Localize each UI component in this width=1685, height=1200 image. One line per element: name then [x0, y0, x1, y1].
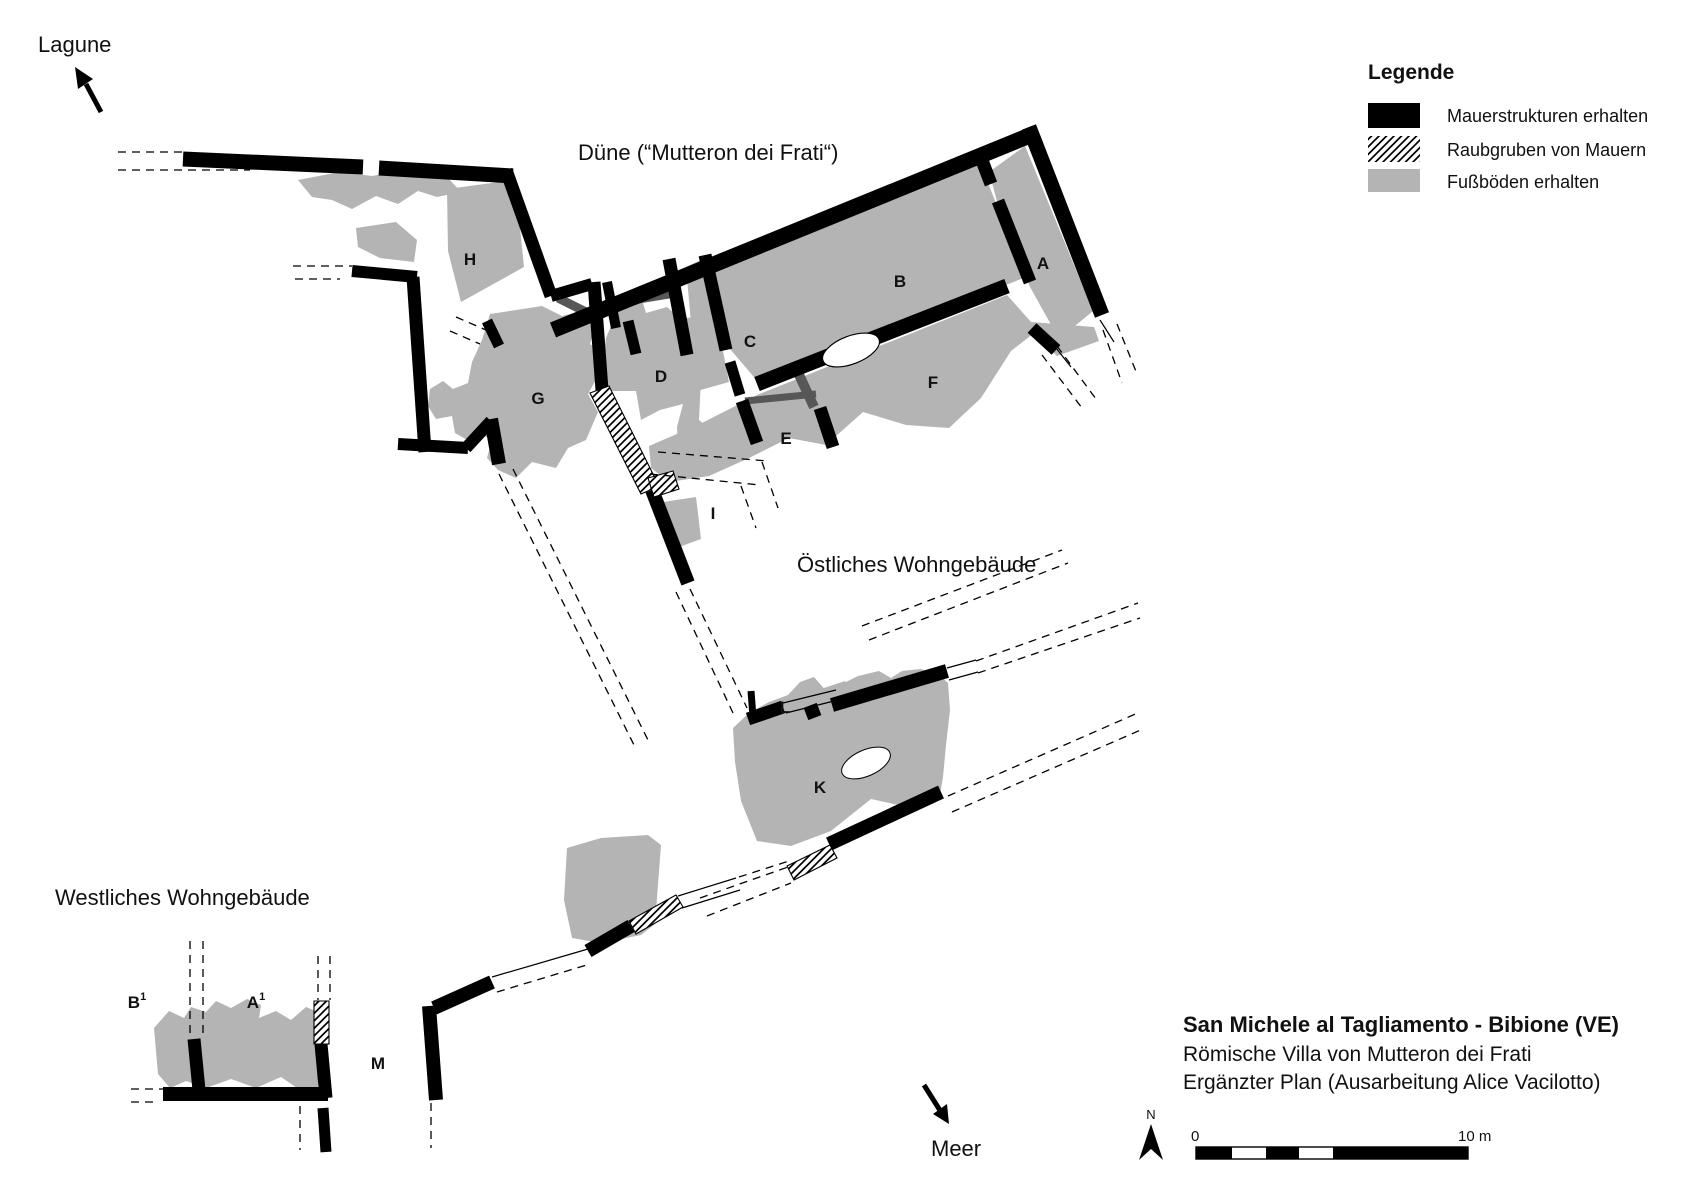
reconstruction-dashed-line [513, 469, 648, 740]
meer-arrow-shaft [924, 1085, 941, 1112]
scale-zero-label: 0 [1191, 1128, 1199, 1145]
plan-credit: Ergänzter Plan (Ausarbeitung Alice Vacil… [1183, 1071, 1601, 1094]
reconstruction-dashed-line [1103, 330, 1122, 383]
legend-title: Legende [1368, 61, 1454, 84]
room-label-b1-base: B [128, 993, 140, 1012]
wall-segment [321, 1044, 326, 1098]
reconstruction-dashed-line [690, 589, 747, 708]
wall-outline-line [1100, 320, 1114, 342]
wall-outline-line [949, 672, 978, 680]
legend-swatch-floors [1368, 169, 1420, 192]
room-label-k: K [814, 778, 827, 797]
wall-segment [398, 444, 468, 448]
wall-segment [628, 321, 636, 354]
lagune-arrow-head [75, 67, 93, 89]
reconstruction-dashed-line [952, 729, 1143, 812]
reconstruction-dashed-line [450, 331, 480, 344]
wall-segment [434, 982, 492, 1008]
wall-segment [413, 277, 425, 452]
meer-arrow [924, 1085, 949, 1124]
reconstruction-dashed-line [456, 317, 486, 330]
reconstruction-dashed-line [1057, 346, 1096, 399]
room-label-f: F [928, 373, 938, 392]
area-label-duene: Düne (“Mutteron dei Frati“) [578, 140, 838, 165]
robber-trench-hatch [314, 1001, 329, 1044]
legend-item-floors: Fußböden erhalten [1447, 172, 1599, 192]
reconstruction-dashed-line [976, 603, 1138, 661]
wall-segment [323, 1108, 326, 1152]
site-plan-canvas: N 0 10 m Legende Mauerstrukturen erhalte… [0, 0, 1685, 1200]
scale-bar-seg2 [1266, 1147, 1299, 1159]
scale-max-label: 10 m [1458, 1128, 1491, 1145]
wall-segment [194, 1039, 199, 1090]
north-arrow-glyph [1139, 1124, 1163, 1160]
reconstruction-dashed-line [1117, 324, 1137, 374]
wall-segment [806, 709, 819, 714]
wall-outline-line [678, 878, 736, 896]
room-label-a1-sup: 1 [259, 991, 265, 1003]
area-label-lagune: Lagune [38, 32, 111, 57]
room-label-a1: A1 [247, 991, 265, 1012]
room-label-b1-sup: 1 [140, 991, 146, 1003]
room-label-h: H [464, 250, 476, 269]
wall-outline-line [492, 949, 588, 977]
reconstruction-dashed-line [948, 712, 1140, 796]
scale-bar-seg1 [1196, 1147, 1232, 1159]
room-label-l: L [780, 698, 790, 717]
room-label-b1: B1 [128, 991, 146, 1012]
wall-segment [183, 159, 363, 167]
area-label-east-building: Östliches Wohngebäude [797, 552, 1036, 577]
robber-trench-hatch [787, 845, 837, 880]
wall-segment [491, 419, 499, 464]
reconstruction-dashed-line [707, 883, 791, 916]
room-label-d: D [655, 367, 667, 386]
lagune-arrow-shaft [86, 84, 101, 112]
west-floor [154, 999, 318, 1090]
wall-segment [352, 271, 417, 277]
room-label-g: G [531, 389, 544, 408]
lagune-arrow [75, 67, 101, 112]
reconstruction-dashed-line [700, 867, 788, 898]
legend-item-robber-trenches: Raubgruben von Mauern [1447, 140, 1646, 160]
reconstruction-dashed-line [497, 964, 590, 992]
wall-outline-line [682, 890, 740, 908]
north-arrow: N [1139, 1107, 1163, 1160]
reconstruction-dashed-line [499, 474, 634, 745]
legend-swatch-robber-trenches [1368, 136, 1420, 162]
north-label: N [1146, 1107, 1155, 1122]
room-label-b: B [894, 272, 906, 291]
reconstruction-dashed-line [676, 592, 733, 713]
room-label-e: E [780, 429, 791, 448]
title-block: San Michele al Tagliamento - Bibione (VE… [1183, 1012, 1619, 1094]
legend-swatch-walls [1368, 103, 1420, 128]
reconstruction-dashed-line [978, 618, 1140, 673]
room-label-c: C [744, 332, 756, 351]
site-plan-svg: N 0 10 m Legende Mauerstrukturen erhalte… [0, 0, 1685, 1200]
wall-segment [551, 284, 592, 296]
wall-outline-line [947, 660, 976, 668]
reconstruction-dashed-line [1042, 355, 1082, 408]
room-label-i: I [711, 504, 716, 523]
plan-subtitle: Römische Villa von Mutteron dei Frati [1183, 1043, 1532, 1066]
legend: Legende Mauerstrukturen erhalten Raubgru… [1368, 61, 1648, 192]
wall-segment [379, 168, 513, 176]
wall-segment [730, 362, 740, 395]
scale-bar-seg3 [1333, 1147, 1468, 1159]
wall-segment [983, 163, 991, 184]
legend-item-walls: Mauerstrukturen erhalten [1447, 106, 1648, 126]
wall-segment [751, 691, 753, 717]
floor-layer [154, 146, 1099, 1090]
area-label-meer: Meer [931, 1136, 981, 1161]
h-west-floor [356, 222, 417, 262]
reconstruction-dashed-line [741, 486, 756, 528]
area-label-west-building: Westliches Wohngebäude [55, 885, 310, 910]
room-label-m: M [371, 1054, 385, 1073]
scale-bar: 0 10 m [1191, 1128, 1491, 1159]
reconstruction-dashed-line [762, 462, 778, 508]
plan-title: San Michele al Tagliamento - Bibione (VE… [1183, 1012, 1619, 1037]
room-label-a1-base: A [247, 993, 259, 1012]
wall-segment [594, 282, 602, 390]
room-label-a: A [1037, 254, 1049, 273]
wall-segment [429, 1006, 436, 1100]
